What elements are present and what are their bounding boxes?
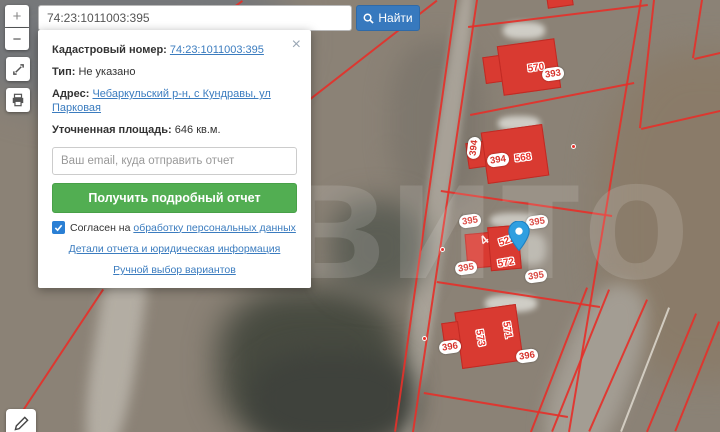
boundary-vertex-dot xyxy=(440,247,445,252)
cadastral-boundary-line xyxy=(552,289,610,432)
plus-icon: + xyxy=(13,8,22,25)
cadastral-boundary-line xyxy=(441,190,612,216)
consent-text: Согласен на обработку персональных данны… xyxy=(70,222,296,234)
parcel-label: 568 xyxy=(514,151,532,164)
fullscreen-button[interactable] xyxy=(6,57,30,81)
expand-arrows-icon xyxy=(12,63,25,76)
parcel-label: 393 xyxy=(541,66,564,82)
zoom-in-button[interactable]: + xyxy=(5,5,29,27)
search-input[interactable] xyxy=(38,5,352,31)
parcel-label: 395 xyxy=(454,260,477,276)
parcel-label: 395 xyxy=(524,268,547,284)
area-label: Уточненная площадь: xyxy=(52,124,172,136)
cadastral-boundary-line xyxy=(675,321,720,432)
cadastral-boundary-line xyxy=(641,110,720,129)
consent-row: Согласен на обработку персональных данны… xyxy=(52,221,297,234)
report-details-link[interactable]: Детали отчета и юридическая информация xyxy=(69,243,281,255)
search-button[interactable]: Найти xyxy=(356,5,420,31)
parcel-label: 396 xyxy=(438,339,461,355)
personal-data-link[interactable]: обработку персональных данных xyxy=(133,222,296,234)
address-row: Адрес: Чебаркульский р-н, с Кундравы, ул… xyxy=(52,87,297,115)
printer-icon xyxy=(11,93,25,107)
map-viewport[interactable]: 5703933943945683953953953954522572573571… xyxy=(0,0,720,432)
parcel-label: 395 xyxy=(458,213,481,229)
address-label: Адрес: xyxy=(52,88,89,100)
area-row: Уточненная площадь: 646 кв.м. xyxy=(52,123,297,137)
manual-select-link[interactable]: Ручной выбор вариантов xyxy=(113,264,236,276)
search-button-label: Найти xyxy=(378,11,412,25)
cadastral-boundary-line xyxy=(693,0,703,58)
cadastral-boundary-line xyxy=(647,313,697,432)
close-icon[interactable]: × xyxy=(292,37,301,53)
cadastral-boundary-line xyxy=(437,281,600,307)
cadastral-boundary-line xyxy=(569,0,642,432)
boundary-vertex-dot xyxy=(422,336,427,341)
type-value: Не указано xyxy=(78,66,135,78)
print-button[interactable] xyxy=(6,88,30,112)
pencil-icon xyxy=(14,416,29,431)
area-value: 646 кв.м. xyxy=(175,124,221,136)
cadastral-boundary-line xyxy=(640,0,655,128)
cadastral-number-row: Кадастровый номер: 74:23:1011003:395 xyxy=(52,43,297,57)
building-footprint xyxy=(546,0,573,9)
boundary-vertex-dot xyxy=(571,144,576,149)
search-icon xyxy=(363,13,374,24)
building-footprint xyxy=(482,55,503,84)
parcel-info-popup: × Кадастровый номер: 74:23:1011003:395 Т… xyxy=(38,30,311,288)
check-icon xyxy=(54,223,63,232)
cadastral-boundary-line xyxy=(468,4,648,27)
search-bar: Найти xyxy=(38,5,420,31)
draw-button[interactable] xyxy=(6,409,36,432)
map-pin-icon[interactable] xyxy=(508,221,530,256)
cadastral-number-link[interactable]: 74:23:1011003:395 xyxy=(170,44,264,56)
type-row: Тип: Не указано xyxy=(52,65,297,79)
get-report-button[interactable]: Получить подробный отчет xyxy=(52,183,297,213)
minus-icon: − xyxy=(13,31,22,48)
cadastral-boundary-line xyxy=(621,307,670,432)
parcel-label: 396 xyxy=(515,348,538,364)
type-label: Тип: xyxy=(52,66,75,78)
consent-checkbox[interactable] xyxy=(52,221,65,234)
zoom-out-button[interactable]: − xyxy=(5,28,29,50)
cadastral-number-label: Кадастровый номер: xyxy=(52,44,167,56)
cadastral-boundary-line xyxy=(424,392,568,417)
email-input[interactable] xyxy=(52,147,297,175)
cadastral-boundary-line xyxy=(395,0,457,432)
cadastral-boundary-line xyxy=(694,52,720,59)
